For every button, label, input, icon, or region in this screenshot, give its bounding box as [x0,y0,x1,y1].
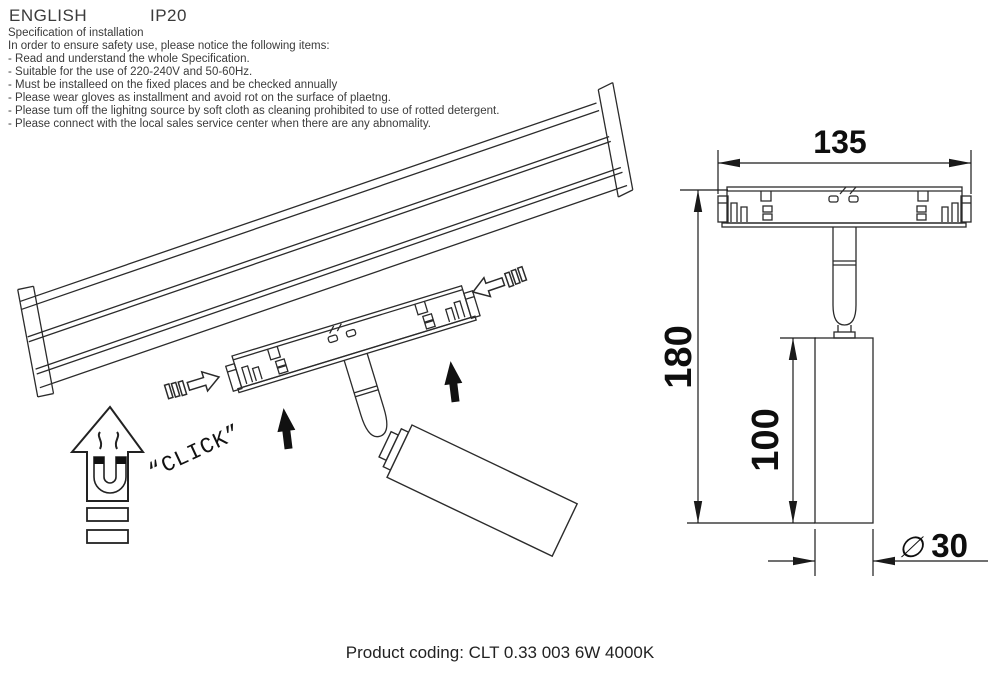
dimension-width-135: 135 [780,126,900,158]
slide-arrow-right-icon [470,265,528,302]
up-arrow-left-icon [275,407,298,450]
specification-text: Specification of installation In order t… [8,27,499,131]
dimension-body-100: 100 [747,390,785,490]
lamp-head-graphic [373,418,578,556]
slide-arrow-left-icon [164,367,222,402]
spec-item: - Please tum off the lighitng source by … [8,105,499,118]
spec-item: - Please wear gloves as installment and … [8,92,499,105]
spec-item: - Suitable for the use of 220-240V and 5… [8,66,499,79]
spec-item: - Read and understand the whole Specific… [8,53,499,66]
spec-title: Specification of installation [8,27,499,40]
dimension-arrowheads [694,159,971,565]
diameter-symbol-icon: ∅ [898,530,923,565]
product-coding-label: Product coding: CLT 0.33 003 6W 4000K [0,643,1000,663]
dimension-height-180: 180 [660,307,698,407]
spec-item: - Must be installeed on the fixed places… [8,79,499,92]
installation-sheet: ENGLISH IP20 Specification of installati… [0,0,1000,690]
up-arrow-right-icon [442,360,465,403]
spec-intro: In order to ensure safety use, please no… [8,40,499,53]
magnet-up-arrow-icon [72,407,143,543]
ip-rating-label: IP20 [150,6,187,26]
dimension-diameter-30: ∅ 30 [898,527,968,565]
adapter-graphic [223,283,505,473]
spec-item: - Please connect with the local sales se… [8,118,499,131]
language-label: ENGLISH [9,6,87,26]
diameter-value: 30 [931,527,968,565]
